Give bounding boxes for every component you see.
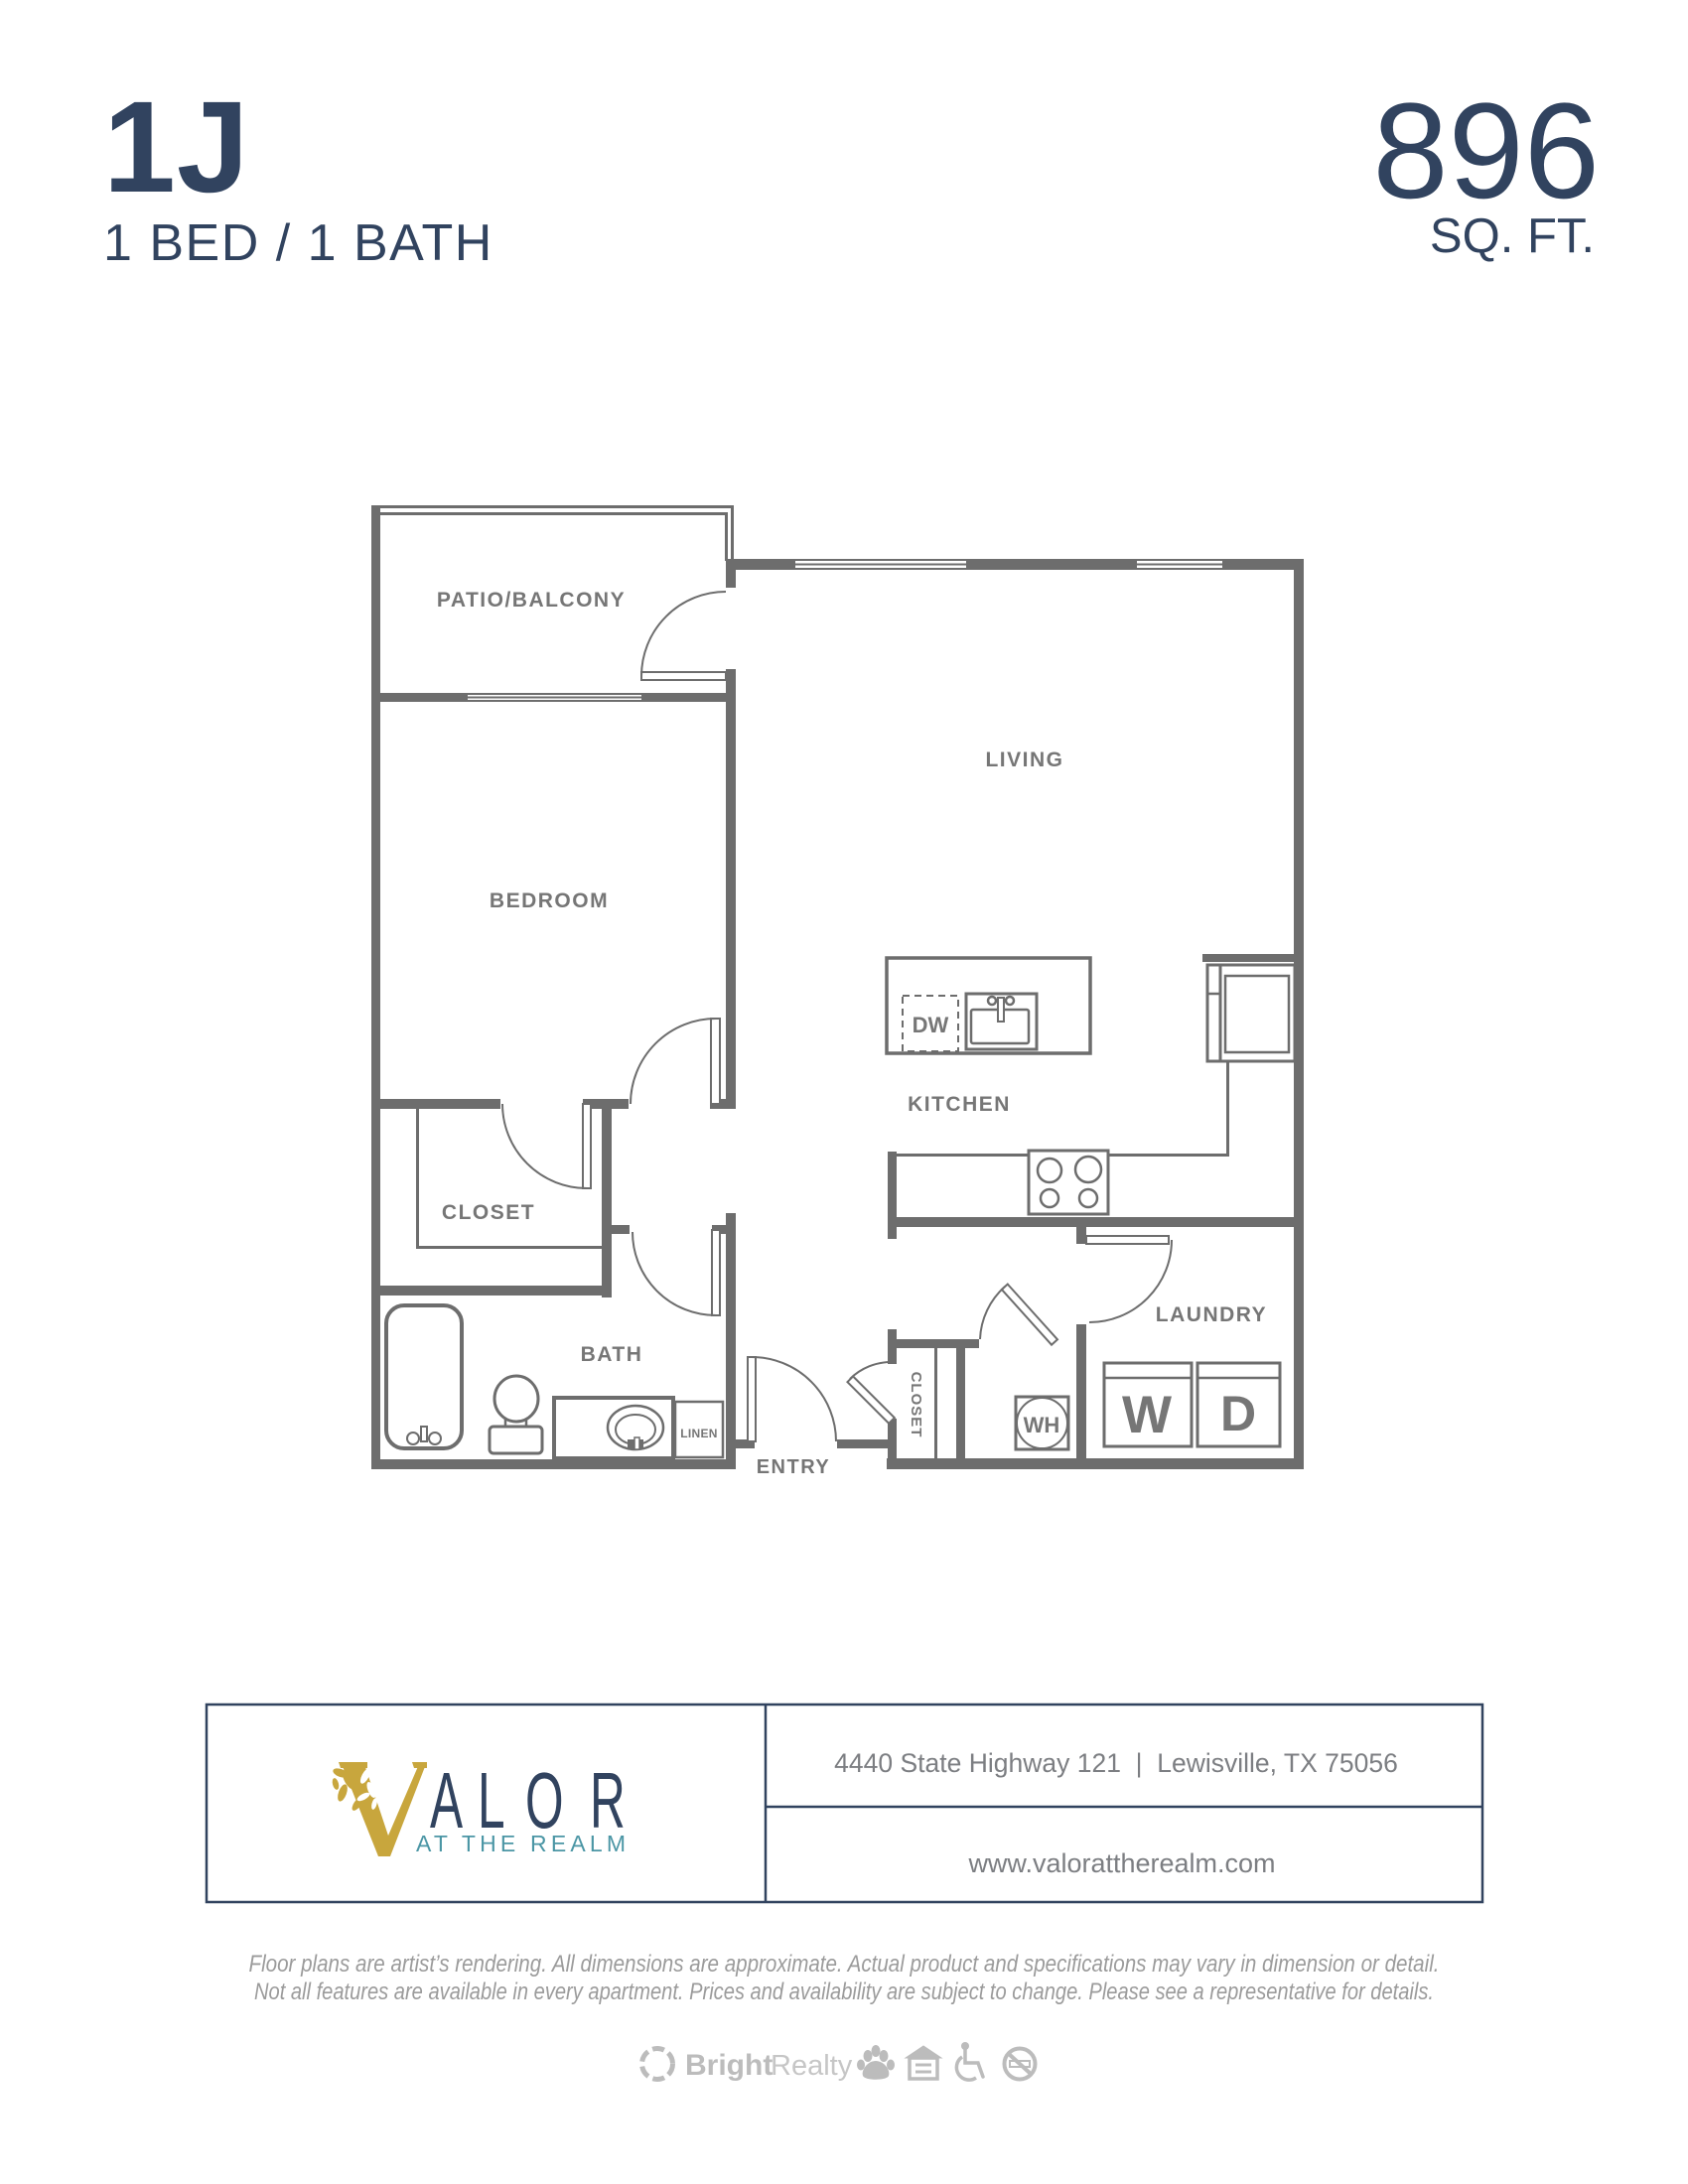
svg-text:Not all features are available: Not all features are available in every … [254,1979,1434,2005]
svg-text:Floor plans are artist’s rende: Floor plans are artist’s rendering. All … [249,1951,1440,1978]
svg-text:1 BED / 1 BATH: 1 BED / 1 BATH [103,214,493,272]
svg-text:CLOSET: CLOSET [908,1372,924,1438]
svg-text:D: D [1220,1386,1256,1441]
svg-text:ENTRY: ENTRY [757,1456,831,1478]
svg-text:896: 896 [1372,75,1600,227]
svg-text:BEDROOM: BEDROOM [490,889,609,912]
svg-text:CLOSET: CLOSET [442,1201,535,1224]
svg-text:4440 State Highway 121 | Lew: 4440 State Highway 121 | Lewisville, TX … [834,1748,1398,1778]
svg-text:DW: DW [913,1013,949,1037]
svg-text:W: W [1122,1386,1172,1444]
svg-text:LIVING: LIVING [985,749,1063,771]
svg-text:PATIO/BALCONY: PATIO/BALCONY [437,589,626,612]
svg-text:SQ. FT.: SQ. FT. [1430,209,1595,263]
svg-text:Realty: Realty [771,2050,853,2082]
svg-text:AT THE REALM: AT THE REALM [416,1831,630,1856]
svg-text:WH: WH [1024,1413,1060,1437]
svg-text:Bright: Bright [685,2049,773,2082]
svg-text:1J: 1J [103,73,250,219]
svg-text:www.valorattherealm.com: www.valorattherealm.com [967,1848,1275,1878]
svg-text:BATH: BATH [581,1343,643,1366]
svg-text:LAUNDRY: LAUNDRY [1156,1303,1267,1326]
svg-text:KITCHEN: KITCHEN [908,1093,1011,1116]
svg-text:LINEN: LINEN [680,1427,718,1440]
